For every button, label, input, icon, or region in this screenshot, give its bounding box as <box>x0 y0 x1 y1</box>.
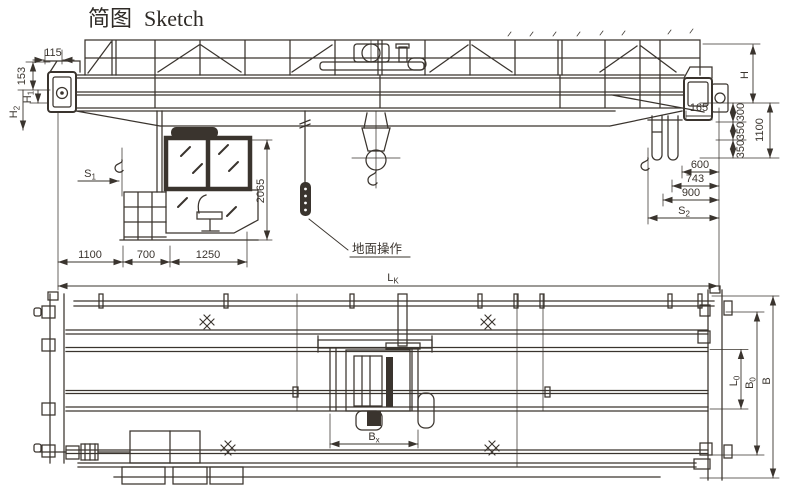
dim-label-153: 153 <box>16 67 28 85</box>
plan-right-end-carriage <box>694 286 732 480</box>
dim-label-h: H <box>739 71 751 79</box>
pendant-control: 地面操作 <box>300 111 410 257</box>
pendant-button <box>304 188 307 191</box>
dim-label-1250: 1250 <box>196 249 220 261</box>
carriage-rails <box>50 294 64 463</box>
hoist-trolley-top <box>320 40 426 70</box>
dim-label-bx: Bx <box>368 431 379 445</box>
platform-box <box>173 467 207 484</box>
axle-box <box>42 445 55 457</box>
bottom-block <box>367 411 381 426</box>
pendant-cable <box>300 111 310 182</box>
hatch-symbol <box>481 315 495 329</box>
axle-box <box>42 403 55 415</box>
dim-label-l0: L0 <box>728 375 742 386</box>
elevation-view: 地面操作 115 153 H1 H2 <box>8 29 779 290</box>
hoist-motor-bar <box>386 357 393 407</box>
pendant-button <box>304 202 307 205</box>
trolley-side-members <box>330 348 418 410</box>
hoist-drum <box>354 356 382 406</box>
axle-box <box>724 301 732 315</box>
dim-label-s1: S1 <box>84 168 96 182</box>
axle-icon <box>60 91 64 95</box>
hoist-body <box>354 44 389 62</box>
bridge-girder <box>76 75 704 126</box>
dim-label-h2: H2 <box>8 105 22 118</box>
axle-box <box>42 339 55 351</box>
dim-label-600: 600 <box>691 159 709 171</box>
pendant-label: 地面操作 <box>352 241 403 256</box>
platform-box <box>122 467 165 484</box>
hoist-post-cap <box>396 44 409 48</box>
drawing-title: 简图Sketch <box>88 6 204 31</box>
operator-seat-icon <box>197 195 222 231</box>
dim-label-165: 165 <box>690 102 708 114</box>
dim-label-lk: LK <box>387 272 399 286</box>
hoist-post <box>399 47 407 62</box>
operator-cab <box>120 111 258 240</box>
cab-body <box>166 189 258 233</box>
gearbox <box>66 446 79 459</box>
dim-label-900: 900 <box>682 187 700 199</box>
left-end-truck <box>44 61 80 112</box>
travel-wheel-icon <box>715 93 725 103</box>
dim-label-s2: S2 <box>678 205 690 219</box>
platform-box <box>210 467 243 484</box>
dim-label-1100-right: 1100 <box>754 118 766 142</box>
platform-panel <box>130 431 200 463</box>
pendant-button <box>304 195 307 198</box>
end-stop <box>710 286 720 293</box>
drum-lines <box>362 356 370 406</box>
dim-label-350a: 350 <box>735 122 747 140</box>
dim-label-2065: 2065 <box>255 179 267 203</box>
cab-suspension-column <box>157 111 162 192</box>
carriage-rails <box>708 290 722 480</box>
dim-label-350b: 350 <box>735 140 747 158</box>
dim-label-b: B <box>761 377 773 384</box>
pendant-button <box>304 209 307 212</box>
dim-label-1100-left: 1100 <box>78 249 102 261</box>
shaft-coupling <box>545 387 550 397</box>
axle-box <box>42 306 55 318</box>
crane-sketch-drawing: 简图Sketch <box>0 0 800 494</box>
axle-box <box>724 445 732 458</box>
buffer <box>34 308 41 316</box>
hatch-symbol <box>200 315 214 329</box>
plan-left-end-carriage <box>34 292 64 463</box>
crane-sketch-page: 简图Sketch <box>0 0 800 494</box>
plan-view: Bx L0 B0 B <box>34 286 779 484</box>
festoon-line <box>74 294 714 308</box>
trolley-cross-beam <box>318 340 432 348</box>
plan-section-lines <box>297 294 543 467</box>
trolley-frame <box>346 350 410 411</box>
dim-label-300: 300 <box>735 103 747 121</box>
conductor-bars <box>648 116 682 160</box>
festoon-wires <box>74 301 714 306</box>
hook-block <box>352 111 400 188</box>
rail-joint-ticks <box>508 29 693 36</box>
dim-label-700: 700 <box>137 249 155 261</box>
plan-trolley <box>318 294 434 430</box>
walkway-platform <box>122 431 243 484</box>
buffer <box>34 444 41 452</box>
collector-mast <box>398 294 407 346</box>
dim-label-115: 115 <box>44 47 62 59</box>
dim-label-b0: B0 <box>744 377 758 389</box>
dim-label-h1: H1 <box>22 90 36 103</box>
dim-label-743: 743 <box>686 173 704 185</box>
end-truck-cap <box>684 67 712 78</box>
